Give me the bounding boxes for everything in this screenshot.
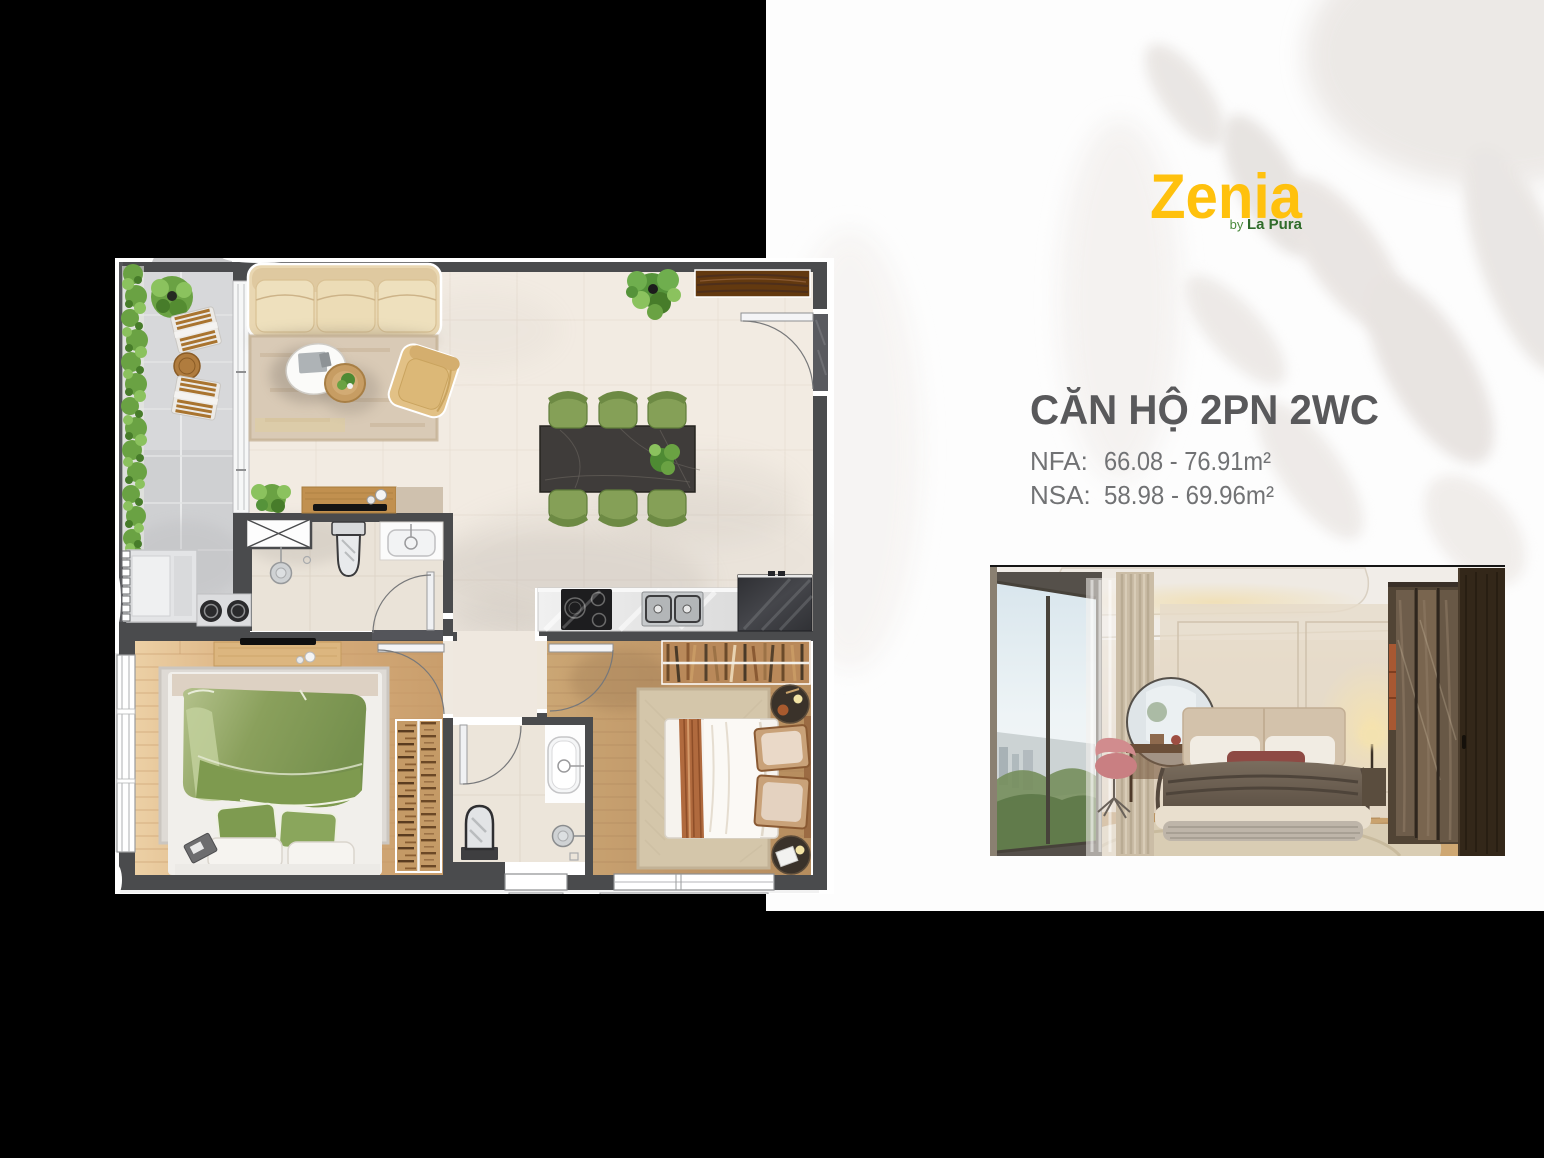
svg-text:58.98 - 69.96m²: 58.98 - 69.96m²	[1104, 480, 1274, 510]
svg-text:CĂN HỘ 2PN 2WC: CĂN HỘ 2PN 2WC	[1030, 385, 1379, 433]
svg-text:NSA:: NSA:	[1030, 480, 1091, 510]
svg-text:66.08 - 76.91m²: 66.08 - 76.91m²	[1104, 446, 1271, 476]
svg-text:NFA:: NFA:	[1030, 446, 1088, 476]
svg-text:by La Pura: by La Pura	[1230, 216, 1303, 233]
